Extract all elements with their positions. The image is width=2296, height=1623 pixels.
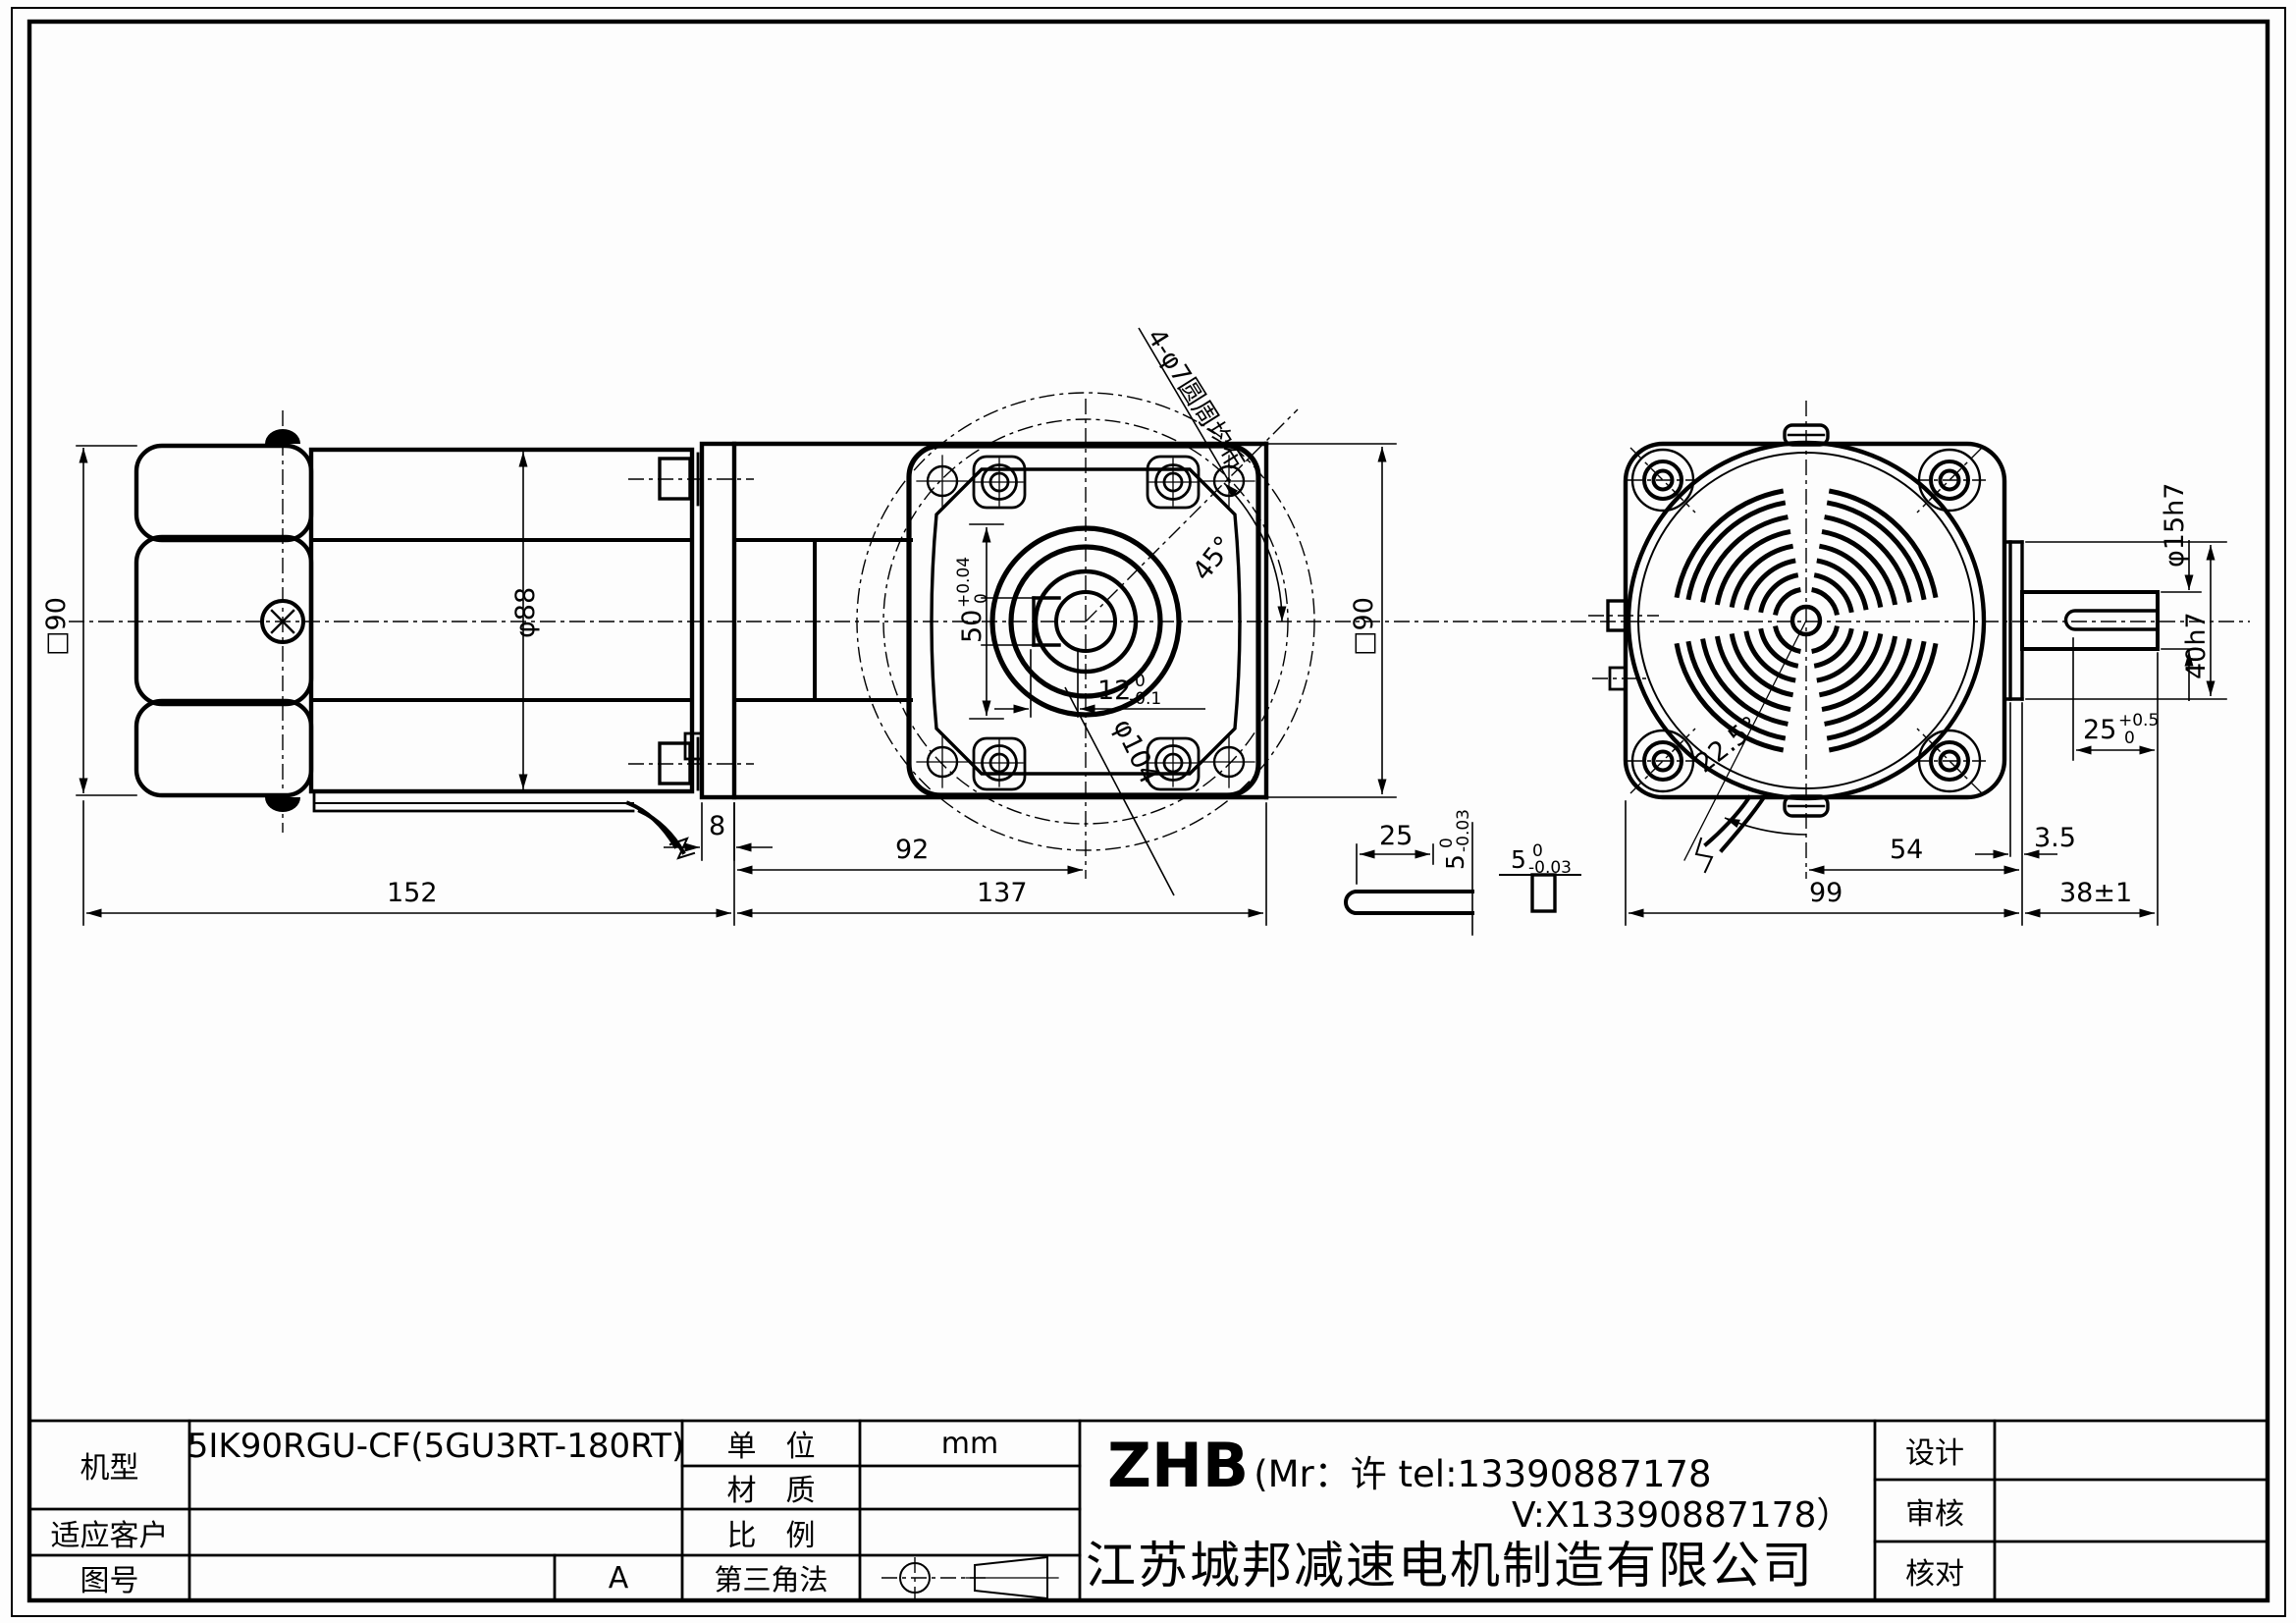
- dim-key-5h: 5 0 -0.03: [1511, 841, 1572, 878]
- company-name: 江苏城邦减速电机制造有限公司: [1086, 1525, 1814, 1597]
- svg-text:-0.1: -0.1: [1129, 689, 1161, 709]
- svg-text:-0.03: -0.03: [1528, 858, 1572, 878]
- svg-text:5: 5: [1441, 854, 1469, 870]
- drawing-no-label: 图号: [29, 1555, 189, 1600]
- scale-value: [860, 1509, 1080, 1555]
- dim-key-25: 25: [1379, 821, 1413, 851]
- drawing-no-value: [189, 1555, 555, 1600]
- unit-label: 单 位: [682, 1421, 860, 1466]
- svg-text:0: 0: [1135, 672, 1146, 691]
- svg-text:25: 25: [2083, 715, 2116, 745]
- dim-92: 92: [895, 835, 929, 865]
- svg-text:0: 0: [2124, 729, 2135, 748]
- model-value: 5IK90RGU-CF(5GU3RT-180RT): [189, 1421, 682, 1472]
- svg-text:+0.04: +0.04: [954, 557, 974, 608]
- dim-square90-left: □90: [41, 597, 72, 656]
- dim-square90-right: □90: [1349, 597, 1379, 656]
- dim-137: 137: [977, 878, 1028, 908]
- review-value: [1995, 1480, 2268, 1542]
- dim-phi15h7: φ15h7: [2160, 483, 2190, 568]
- design-label: 设计: [1875, 1421, 1995, 1480]
- projection-label: 第三角法: [682, 1555, 860, 1600]
- dim-25-tol: 25 +0.5 0: [2083, 711, 2159, 748]
- dim-45deg: 45°: [1187, 531, 1240, 587]
- svg-text:+0.5: +0.5: [2118, 711, 2159, 730]
- dim-key-5v: 5 0 -0.03: [1437, 809, 1473, 870]
- engineering-drawing-page: □90 φ88 8 92 152 137 50 +0.04 0 12 0 -0.…: [0, 0, 2296, 1623]
- dim-3-5: 3.5: [2034, 823, 2076, 853]
- dim-phi88: φ88: [510, 587, 541, 638]
- dim-38: 38±1: [2059, 878, 2132, 908]
- dim-8: 8: [709, 811, 725, 841]
- material-value: [860, 1466, 1080, 1509]
- customer-label: 适应客户: [29, 1509, 189, 1555]
- revision-value: A: [555, 1555, 682, 1600]
- projection-symbol-icon: [881, 1557, 1058, 1598]
- dimension-labels: □90 φ88 8 92 152 137 50 +0.04 0 12 0 -0.…: [41, 324, 2212, 908]
- svg-text:50: 50: [957, 610, 988, 643]
- note-4-phi7: 4-φ7圆周均布: [1141, 324, 1251, 476]
- company-brand: ZHB: [1107, 1430, 1249, 1501]
- dim-99: 99: [1809, 878, 1842, 908]
- material-label: 材 质: [682, 1466, 860, 1509]
- dim-12-tol: 12 0 -0.1: [1097, 672, 1161, 709]
- svg-text:-0.03: -0.03: [1454, 809, 1473, 852]
- svg-text:5: 5: [1511, 845, 1526, 874]
- dim-phi104: φ104: [1107, 714, 1164, 788]
- check-label: 核对: [1875, 1542, 1995, 1600]
- customer-value: [189, 1509, 682, 1555]
- check-value: [1995, 1542, 2268, 1600]
- dim-54: 54: [1890, 835, 1923, 865]
- rear-view: [1588, 401, 2004, 879]
- side-view: [136, 410, 1266, 858]
- unit-value: mm: [860, 1421, 1080, 1466]
- design-value: [1995, 1421, 2268, 1480]
- scale-label: 比 例: [682, 1509, 860, 1555]
- review-label: 审核: [1875, 1480, 1995, 1542]
- model-label: 机型: [29, 1421, 189, 1509]
- dim-152: 152: [387, 878, 438, 908]
- svg-text:12: 12: [1097, 676, 1131, 706]
- drawing-canvas: □90 φ88 8 92 152 137 50 +0.04 0 12 0 -0.…: [0, 0, 2296, 1623]
- shaft-detail: [2004, 542, 2158, 699]
- dim-40h7: 40h7: [2181, 612, 2212, 679]
- svg-text:0: 0: [972, 593, 991, 604]
